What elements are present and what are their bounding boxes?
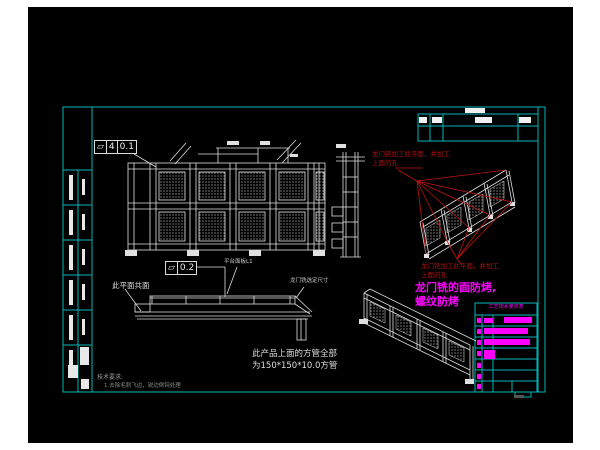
red-note-line: 龙门铣加工此平面，并加工 (372, 150, 450, 159)
dimension-lines (198, 148, 290, 163)
top-right-table (418, 108, 538, 141)
title-block-text-bars (477, 317, 532, 389)
tube-note-line: 此产品上面的方管全部 (252, 348, 337, 360)
sheet-footer-mark (514, 395, 524, 398)
red-machining-note-upper: 龙门铣加工此平面，并加工 上面的孔 (372, 150, 450, 169)
gantry-dimension-label: 龙门铣选定尺寸 (290, 278, 329, 285)
coplanar-label: 此平面共面 (112, 281, 150, 290)
cad-canvas[interactable]: ▱ 4 0.1 ▱ 0.2 此平面共面 平台面板L1 龙门铣选定尺寸 龙门铣加工… (28, 7, 573, 443)
technical-requirements-item: 1.去除毛刺飞边，锐边倒钝处理 (104, 383, 181, 390)
tube-note-line: 为150*150*10.0方管 (252, 360, 337, 372)
red-note-line: 上面的孔 (421, 271, 499, 280)
flatness-icon: ▱ (166, 262, 178, 274)
bom-strip (63, 170, 92, 392)
red-note-line: 上面的孔 (372, 159, 450, 168)
tolerance-zone: 4 (107, 141, 118, 153)
platform-label: 平台面板L1 (224, 259, 253, 266)
flatness-tolerance-frame-2: ▱ 0.2 (165, 261, 197, 275)
column-detail-view (332, 144, 365, 257)
side-elevation-view (125, 267, 312, 340)
tolerance-value: 0.1 (118, 141, 136, 153)
flatness-icon: ▱ (95, 141, 107, 153)
cad-application-page: ▱ 4 0.1 ▱ 0.2 此平面共面 平台面板L1 龙门铣选定尺寸 龙门铣加工… (0, 0, 600, 450)
red-note-line: 龙门铣加工此平面，并加工 (421, 262, 499, 271)
title-block-header: 工艺技术要求表 (475, 304, 537, 310)
masking-note-line: 龙门铣的面防烤, (415, 281, 496, 295)
hatched-panels (159, 172, 324, 241)
tolerance-value: 0.2 (178, 262, 196, 274)
table-text-marks (419, 108, 531, 123)
plan-view (125, 140, 325, 256)
red-machining-note-lower: 龙门铣加工此平面，并加工 上面的孔 (421, 262, 499, 281)
flatness-tolerance-frame-1: ▱ 4 0.1 (94, 140, 137, 154)
technical-requirements-title: 技术要求: (97, 374, 123, 381)
square-tube-note: 此产品上面的方管全部 为150*150*10.0方管 (252, 348, 337, 373)
plan-feet (125, 250, 325, 256)
title-block-table (475, 303, 537, 398)
